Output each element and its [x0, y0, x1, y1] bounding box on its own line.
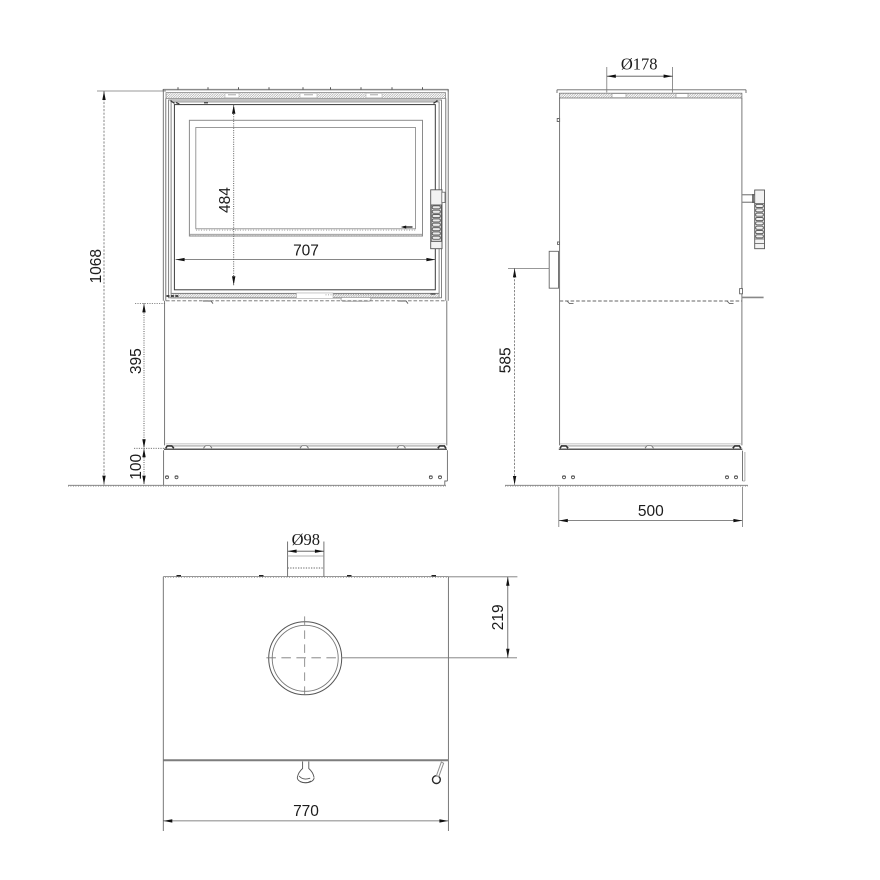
- svg-text:707: 707: [293, 242, 319, 259]
- svg-text:Ø98: Ø98: [292, 530, 320, 549]
- svg-text:100: 100: [128, 453, 145, 479]
- svg-text:500: 500: [638, 503, 664, 520]
- svg-text:395: 395: [128, 348, 145, 374]
- svg-text:219: 219: [490, 604, 507, 630]
- svg-text:770: 770: [293, 803, 319, 820]
- svg-text:Ø178: Ø178: [621, 55, 658, 74]
- svg-text:1068: 1068: [88, 249, 105, 283]
- svg-text:484: 484: [217, 187, 234, 213]
- svg-text:585: 585: [497, 347, 514, 373]
